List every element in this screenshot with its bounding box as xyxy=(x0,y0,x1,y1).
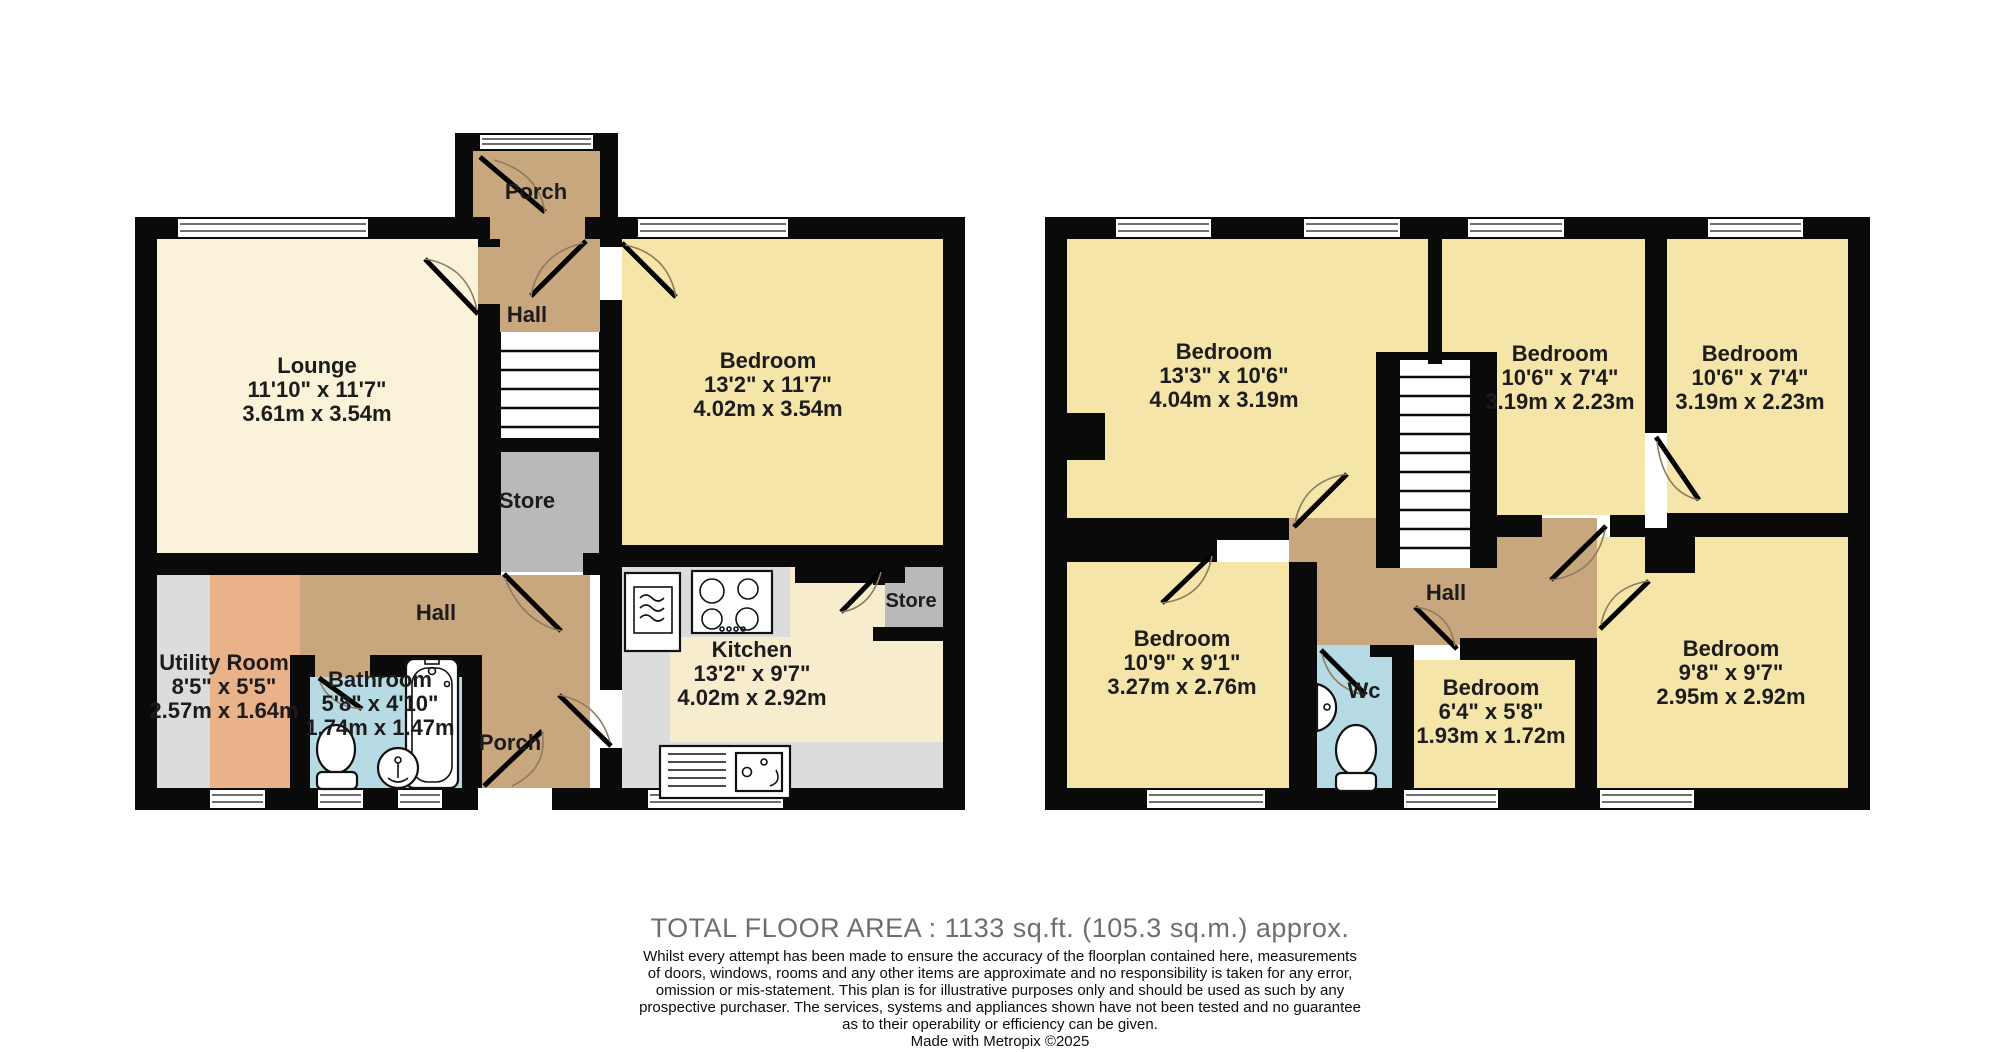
basin-icon-bathroom xyxy=(378,748,418,788)
room-label-line: Bedroom xyxy=(720,348,817,373)
room-label-line: Store xyxy=(499,488,555,513)
room-label-line: 6'4" x 5'8" xyxy=(1439,699,1544,724)
room-label-line: Bathroom xyxy=(328,667,432,692)
room-label-line: 2.57m x 1.64m xyxy=(149,698,298,723)
room-bedroom-top-left-ext xyxy=(1388,239,1428,358)
toilet-icon-wc xyxy=(1336,725,1376,791)
room-label-line: Bedroom xyxy=(1443,675,1540,700)
total-floor-area-title: TOTAL FLOOR AREA : 1133 sq.ft. (105.3 sq… xyxy=(651,913,1350,943)
room-label-line: 4.02m x 2.92m xyxy=(677,685,826,710)
room-label-line: Hall xyxy=(416,600,456,625)
footer: TOTAL FLOOR AREA : 1133 sq.ft. (105.3 sq… xyxy=(639,913,1361,1050)
room-label-line: Hall xyxy=(1426,580,1466,605)
first-floor-plan: Bedroom 13'3" x 10'6" 4.04m x 3.19m Bedr… xyxy=(1045,217,1870,810)
room-label-line: 4.02m x 3.54m xyxy=(693,396,842,421)
room-label-line: 13'3" x 10'6" xyxy=(1159,363,1288,388)
room-label-porch-top: Porch xyxy=(505,179,567,204)
room-label-line: 13'2" x 9'7" xyxy=(694,661,811,686)
stairs-icon-first xyxy=(1400,358,1470,568)
room-label-line: Wc xyxy=(1348,678,1381,703)
room-label-utility: Utility Room 8'5" x 5'5" 2.57m x 1.64m xyxy=(149,650,298,723)
metropix-credit: Made with Metropix ©2025 xyxy=(911,1033,1090,1050)
room-label-line: 13'2" x 11'7" xyxy=(704,372,832,397)
room-label-wc: Wc xyxy=(1348,678,1381,703)
room-label-line: 3.61m x 3.54m xyxy=(242,401,391,426)
room-label-line: Kitchen xyxy=(712,637,793,662)
floorplan-drawing: Porch Hall Lounge 11'10" x 11'7" 3.61m x… xyxy=(0,0,2000,1052)
disclaimer-line: omission or mis-statement. This plan is … xyxy=(656,982,1345,999)
room-label-line: 3.19m x 2.23m xyxy=(1675,389,1824,414)
room-label-line: Bedroom xyxy=(1512,341,1609,366)
room-label-line: Bedroom xyxy=(1134,626,1231,651)
room-label-line: Porch xyxy=(505,179,567,204)
oven-icon xyxy=(625,573,680,651)
room-label-line: Bedroom xyxy=(1176,339,1273,364)
sink-icon xyxy=(660,746,790,798)
room-label-line: 2.95m x 2.92m xyxy=(1656,684,1805,709)
room-label-line: Hall xyxy=(507,302,547,327)
disclaimer-line: Whilst every attempt has been made to en… xyxy=(643,948,1357,965)
room-label-hall-lower: Hall xyxy=(416,600,456,625)
room-label-hall-upper: Hall xyxy=(507,302,547,327)
room-label-line: 3.19m x 2.23m xyxy=(1485,389,1634,414)
room-label-line: Porch xyxy=(479,730,541,755)
room-label-line: 8'5" x 5'5" xyxy=(172,674,277,699)
room-label-line: 1.74m x 1.47m xyxy=(305,715,454,740)
room-label-line: 11'10" x 11'7" xyxy=(247,377,386,402)
room-label-store-kitchen: Store xyxy=(885,590,936,612)
room-label-line: Bedroom xyxy=(1702,341,1799,366)
hob-icon xyxy=(692,571,772,633)
room-label-line: 10'6" x 7'4" xyxy=(1502,365,1619,390)
stairs-icon-ground xyxy=(501,332,599,438)
room-label-line: 5'8" x 4'10" xyxy=(322,691,439,716)
room-label-line: Bedroom xyxy=(1683,636,1780,661)
room-label-line: Utility Room xyxy=(159,650,289,675)
ground-floor-plan: Porch Hall Lounge 11'10" x 11'7" 3.61m x… xyxy=(135,133,965,810)
disclaimer-line: as to their operability or efficiency ca… xyxy=(842,1016,1158,1033)
room-label-hall-first: Hall xyxy=(1426,580,1466,605)
room-label-line: 3.27m x 2.76m xyxy=(1107,674,1256,699)
room-label-line: 10'9" x 9'1" xyxy=(1124,650,1241,675)
room-label-line: 10'6" x 7'4" xyxy=(1692,365,1809,390)
disclaimer-line: of doors, windows, rooms and any other i… xyxy=(648,965,1353,982)
room-label-line: 9'8" x 9'7" xyxy=(1679,660,1784,685)
room-label-store-stairs: Store xyxy=(499,488,555,513)
room-label-line: Lounge xyxy=(277,353,356,378)
room-label-line: 4.04m x 3.19m xyxy=(1149,387,1298,412)
room-label-line: 1.93m x 1.72m xyxy=(1416,723,1565,748)
floorplan-page: Porch Hall Lounge 11'10" x 11'7" 3.61m x… xyxy=(0,0,2000,1052)
room-label-line: Store xyxy=(885,590,936,612)
room-label-porch-lower: Porch xyxy=(479,730,541,755)
disclaimer-line: prospective purchaser. The services, sys… xyxy=(639,999,1361,1016)
